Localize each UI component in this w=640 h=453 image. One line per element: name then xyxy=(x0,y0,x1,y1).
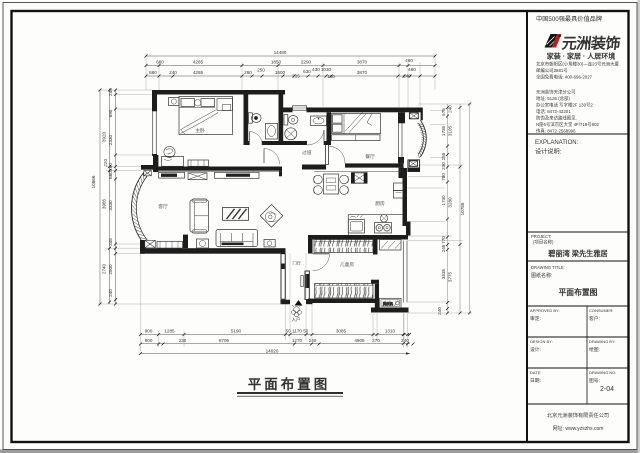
svg-text:3870: 3870 xyxy=(357,70,368,75)
svg-text:3920: 3920 xyxy=(102,131,107,142)
svg-text:图纸名称:: 图纸名称: xyxy=(531,272,552,279)
svg-text:3535: 3535 xyxy=(441,268,446,279)
svg-text:240: 240 xyxy=(448,105,453,113)
svg-text:14480: 14480 xyxy=(274,50,287,55)
svg-text:全国免费电话: 400-696-2027: 全国免费电话: 400-696-2027 xyxy=(536,74,593,81)
svg-text:2500: 2500 xyxy=(108,264,113,275)
svg-text:660: 660 xyxy=(156,60,164,65)
svg-text:240: 240 xyxy=(108,88,113,96)
svg-text:地址: 5126 (总部): 地址: 5126 (总部) xyxy=(536,95,570,102)
svg-text:240: 240 xyxy=(403,74,411,79)
svg-text:3085: 3085 xyxy=(336,329,347,334)
svg-text:630: 630 xyxy=(303,69,311,74)
svg-text:14020: 14020 xyxy=(266,349,279,354)
svg-text:N座6号滨京区大堂 4F/718号802: N座6号滨京区大堂 4F/718号802 xyxy=(536,121,600,128)
svg-text:900: 900 xyxy=(145,338,153,343)
svg-text:厨房: 厨房 xyxy=(375,200,385,207)
svg-text:2-04: 2-04 xyxy=(600,386,614,393)
svg-text:洗衣机: 洗衣机 xyxy=(383,301,394,306)
svg-text:900: 900 xyxy=(145,329,153,334)
svg-text:260: 260 xyxy=(244,70,252,75)
svg-text:3280: 3280 xyxy=(448,197,453,208)
svg-text:北京市朝阳区(小角楼30)—连23号元洲大厦: 北京市朝阳区(小角楼30)—连23号元洲大厦 xyxy=(536,61,620,68)
svg-text:1285: 1285 xyxy=(164,329,175,334)
svg-text:图号:: 图号: xyxy=(589,378,600,384)
svg-text:1030: 1030 xyxy=(321,67,332,72)
svg-text:绘图:: 绘图: xyxy=(589,346,600,353)
svg-text:审定:: 审定: xyxy=(530,315,541,322)
svg-text:入户: 入户 xyxy=(292,316,301,323)
svg-text:345: 345 xyxy=(108,238,113,246)
svg-text:门厅: 门厅 xyxy=(293,260,301,267)
svg-text:3870: 3870 xyxy=(357,60,368,65)
svg-text:3105: 3105 xyxy=(448,125,453,136)
svg-text:DRAWING BY:: DRAWING BY: xyxy=(589,339,616,344)
svg-text:270: 270 xyxy=(372,338,380,343)
svg-text:碧丽湾 梁先生雅居: 碧丽湾 梁先生雅居 xyxy=(547,249,608,258)
svg-text:1310: 1310 xyxy=(385,329,396,334)
svg-text:4265: 4265 xyxy=(193,70,204,75)
svg-text:215: 215 xyxy=(292,74,300,79)
svg-text:690: 690 xyxy=(108,109,113,117)
svg-text:办公室电话 写字楼2F 130号2: 办公室电话 写字楼2F 130号2 xyxy=(536,102,593,109)
svg-text:(项目名称): (项目名称) xyxy=(533,239,554,246)
svg-text:230: 230 xyxy=(441,162,446,170)
svg-text:传真: 8472-2568996: 传真: 8472-2568996 xyxy=(536,128,576,135)
svg-text:240: 240 xyxy=(437,307,442,315)
svg-text:255: 255 xyxy=(441,152,446,160)
svg-text:2290: 2290 xyxy=(301,60,312,65)
svg-text:660: 660 xyxy=(149,70,157,75)
svg-text:元洲装饰: 元洲装饰 xyxy=(561,35,621,53)
svg-text:元洲装饰天津分公司: 元洲装饰天津分公司 xyxy=(536,89,576,96)
svg-text:260: 260 xyxy=(108,163,113,171)
svg-text:2740: 2740 xyxy=(102,263,107,274)
svg-text:460: 460 xyxy=(405,58,413,63)
svg-text:2330: 2330 xyxy=(108,134,113,145)
svg-text:6705: 6705 xyxy=(219,338,230,343)
svg-text:DRAWING TITLE:: DRAWING TITLE: xyxy=(531,265,565,270)
svg-text:中国500强最具价值品牌: 中国500强最具价值品牌 xyxy=(536,15,602,23)
svg-text:家装 · 家居 · 人居环境: 家装 · 家居 · 人居环境 xyxy=(547,52,615,61)
svg-text:10866: 10866 xyxy=(91,175,96,188)
svg-text:130: 130 xyxy=(327,74,335,79)
svg-text:230: 230 xyxy=(179,338,187,343)
svg-text:DESIGN BY:: DESIGN BY: xyxy=(530,339,553,344)
svg-text:5190: 5190 xyxy=(231,329,242,334)
svg-text:PROJECT:: PROJECT: xyxy=(531,234,551,239)
svg-text:北京元洲装饰有限责任公司: 北京元洲装饰有限责任公司 xyxy=(547,411,609,419)
svg-text:430: 430 xyxy=(312,67,320,72)
svg-text:平面布置图: 平面布置图 xyxy=(248,376,331,392)
svg-text:240: 240 xyxy=(309,338,317,343)
svg-text:主卧: 主卧 xyxy=(195,127,205,134)
svg-text:DRAWING NO:: DRAWING NO: xyxy=(589,370,616,375)
svg-text:3775: 3775 xyxy=(448,271,453,282)
svg-text:防伪及来访路线图见.: 防伪及来访路线图见. xyxy=(536,115,577,122)
svg-text:240: 240 xyxy=(169,70,177,75)
svg-text:设计说明:: 设计说明: xyxy=(535,148,562,156)
svg-text:DATE:: DATE: xyxy=(530,370,541,375)
svg-text:10785: 10785 xyxy=(460,202,465,215)
svg-text:餐厅: 餐厅 xyxy=(365,153,375,160)
svg-text:平面布置图: 平面布置图 xyxy=(559,287,598,297)
svg-text:1270: 1270 xyxy=(292,338,303,343)
svg-text:1735: 1735 xyxy=(441,125,446,136)
svg-text:250: 250 xyxy=(257,68,265,73)
svg-text:460: 460 xyxy=(408,67,416,72)
svg-text:EXPLANATION:: EXPLANATION: xyxy=(535,140,579,146)
svg-text:3985: 3985 xyxy=(102,198,107,209)
svg-text:245: 245 xyxy=(441,244,446,252)
svg-text:APPROVED BY:: APPROVED BY: xyxy=(530,308,560,313)
svg-text:1600: 1600 xyxy=(275,70,286,75)
svg-text:780: 780 xyxy=(441,173,446,181)
svg-text:邮编公司2881号: 邮编公司2881号 xyxy=(536,67,568,74)
svg-text:50 1170 50: 50 1170 50 xyxy=(286,329,309,334)
svg-text:4905: 4905 xyxy=(354,338,365,343)
svg-text:3330: 3330 xyxy=(108,200,113,211)
svg-text:网址: www.yzszhs.com: 网址: www.yzszhs.com xyxy=(553,425,604,432)
svg-text:客厅: 客厅 xyxy=(158,203,168,210)
svg-text:CONSUMER:: CONSUMER: xyxy=(589,308,613,313)
svg-text:过道: 过道 xyxy=(302,149,312,156)
svg-text:4265: 4265 xyxy=(193,60,204,65)
svg-text:日期:: 日期: xyxy=(530,378,541,384)
svg-text:1850: 1850 xyxy=(271,60,282,65)
svg-text:儿童房: 儿童房 xyxy=(340,261,355,268)
svg-text:1730: 1730 xyxy=(441,195,446,206)
svg-text:客户:: 客户: xyxy=(589,315,600,322)
svg-text:240: 240 xyxy=(108,289,113,297)
svg-text:575: 575 xyxy=(441,108,446,116)
svg-text:660: 660 xyxy=(108,171,113,179)
svg-text:770: 770 xyxy=(441,236,446,244)
svg-text:设计:: 设计: xyxy=(530,346,541,353)
svg-text:240: 240 xyxy=(401,338,409,343)
svg-text:电话: 8472-43201: 电话: 8472-43201 xyxy=(536,108,571,115)
